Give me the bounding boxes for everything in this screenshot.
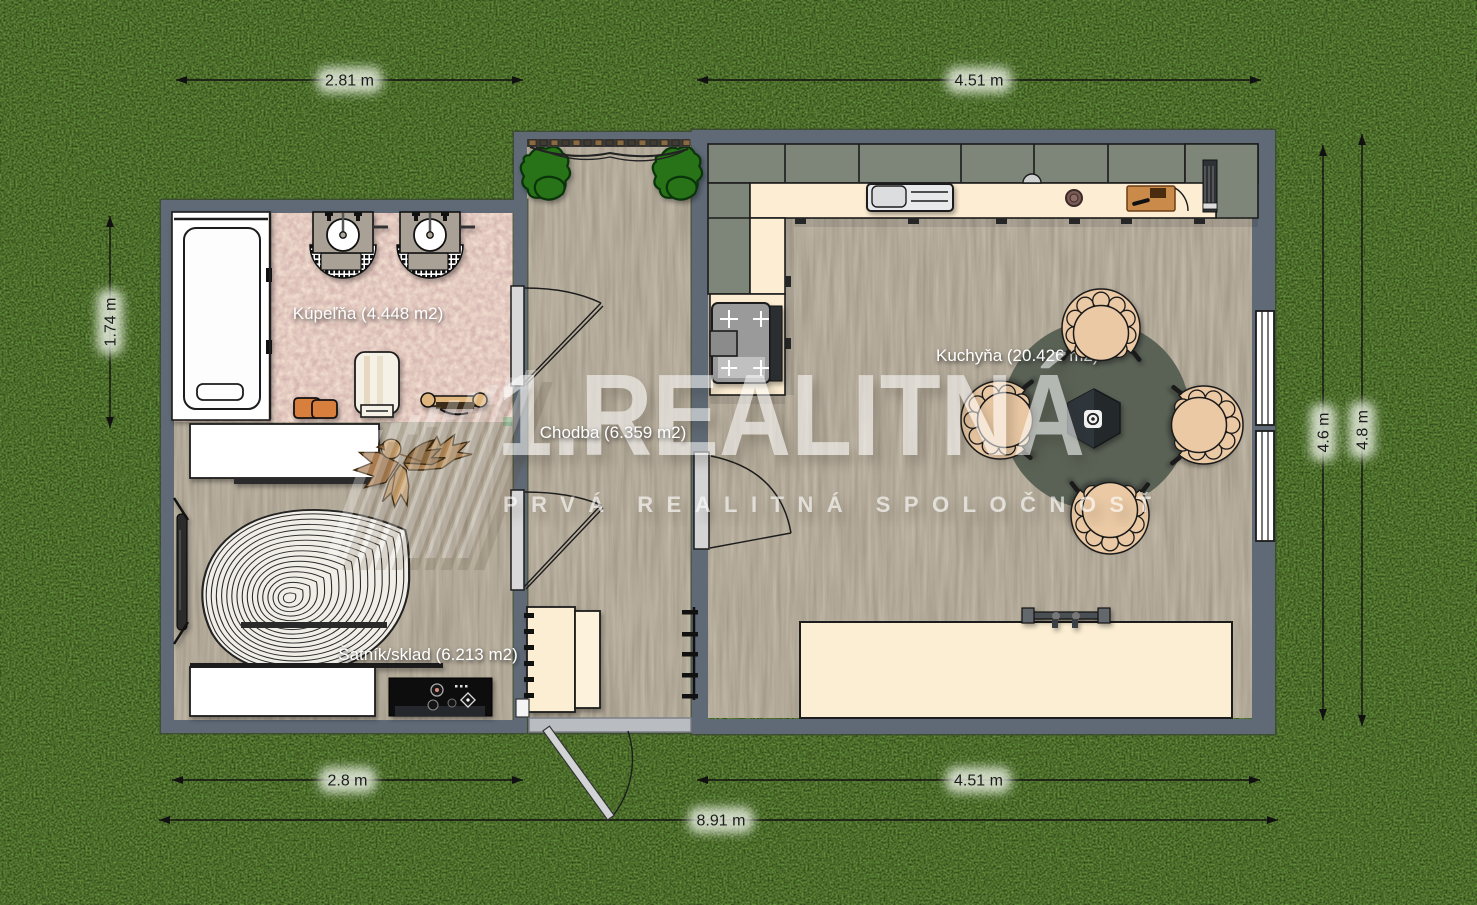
- svg-text:4.51 m: 4.51 m: [955, 73, 1004, 90]
- svg-text:4.8 m: 4.8 m: [1355, 410, 1372, 450]
- svg-text:8.91 m: 8.91 m: [697, 813, 746, 830]
- svg-text:PRVÁ REALITNÁ SPOLOČNOSŤ: PRVÁ REALITNÁ SPOLOČNOSŤ: [503, 492, 1152, 517]
- svg-text:1.REALITNÁ: 1.REALITNÁ: [497, 350, 1085, 480]
- svg-text:1.74 m: 1.74 m: [103, 298, 120, 347]
- svg-text:4.51 m: 4.51 m: [954, 773, 1003, 790]
- svg-text:4.6 m: 4.6 m: [1316, 412, 1333, 452]
- svg-text:Šatník/sklad (6.213 m2): Šatník/sklad (6.213 m2): [338, 645, 518, 664]
- svg-text:2.8 m: 2.8 m: [327, 773, 367, 790]
- svg-text:Chodba (6.359 m2): Chodba (6.359 m2): [540, 423, 686, 442]
- svg-text:Kúpeľňa (4.448 m2): Kúpeľňa (4.448 m2): [293, 304, 444, 323]
- svg-text:2.81 m: 2.81 m: [325, 73, 374, 90]
